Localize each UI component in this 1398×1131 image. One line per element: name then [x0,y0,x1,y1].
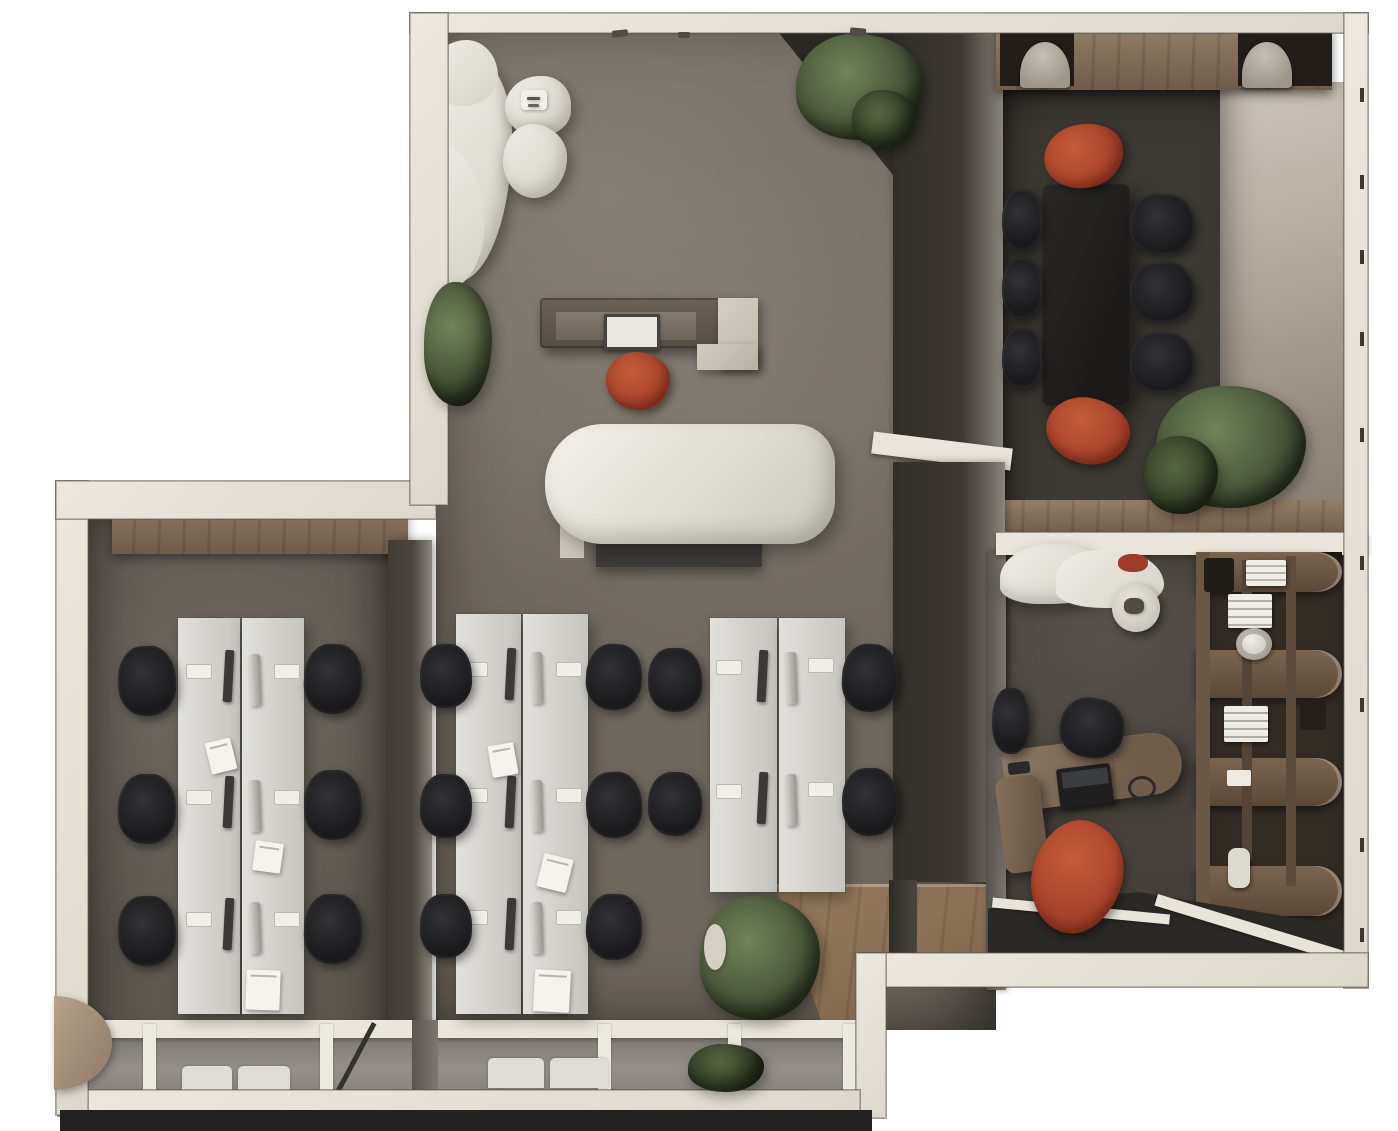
facade-header [86,1020,862,1038]
keyboard [716,660,742,675]
keyboard [808,658,834,673]
potted-plant [852,90,916,148]
office-chair [1002,328,1042,388]
wall-edge-tick [1360,838,1364,852]
paper-sheet [252,840,284,874]
facade-mullion [143,1024,156,1096]
wall-team-room-top [56,481,436,519]
keyboard [556,662,582,677]
monitor [531,902,544,954]
paper-sheet [533,969,571,1013]
planter-vase [704,924,726,970]
wall-outer-bottom-right [860,953,1368,987]
monitor [785,652,798,704]
tray-decor [521,90,547,110]
office-floorplan-render [0,0,1398,1131]
sofa-red-cushion [1118,554,1148,572]
office-chair [303,769,363,841]
keyboard [274,664,300,679]
window-reflection-tab [488,1058,544,1088]
facade-mullion [843,1024,856,1096]
office-chair [420,894,472,958]
facade-mullion [320,1024,333,1096]
office-chair [841,767,899,837]
shelf-vase [1236,628,1272,660]
wall-outer-right [1344,13,1368,988]
office-chair [647,771,703,837]
wall-edge-tick [1360,928,1364,942]
waiting-bench [545,424,835,544]
office-chair [1129,261,1195,323]
wall-outer-top [410,13,1368,33]
potted-plant [688,1044,764,1092]
office-chair [647,647,703,713]
keyboard [716,784,742,799]
keyboard [808,782,834,797]
office-chair [1129,331,1195,393]
shelf-bottle [1228,848,1250,888]
office-chair [840,643,899,714]
office-chair [1002,190,1042,250]
potted-plant [1144,436,1218,514]
wall-hook [850,27,867,36]
bookshelf-upright [1196,552,1210,940]
shelf-item-dark [1204,558,1234,592]
wall-corridor-stub [889,880,917,954]
office-chair [584,643,643,712]
books-stack [1224,706,1268,742]
reception-monitor [604,314,660,350]
wall-edge-tick [1360,698,1364,712]
office-chair [303,893,363,965]
tray-item [528,104,539,107]
side-table-decor [1124,598,1144,614]
bookshelf-upright [1286,556,1296,886]
monitor [531,780,544,832]
keyboard [186,912,212,927]
office-chair [1002,258,1042,318]
rust-chair [606,352,670,410]
wall-edge-tick [1360,556,1364,570]
office-chair [585,893,643,961]
keyboard [186,664,212,679]
shelf-item-small [1227,770,1251,786]
monitor [249,654,262,706]
office-chair [117,773,177,845]
wall-facade-stub [412,1020,438,1098]
office-chair [302,643,364,716]
paper-sheet [245,969,280,1010]
shelf-item-dark [1300,700,1326,730]
office-chair [419,643,473,709]
tray-item [527,97,540,100]
window-reflection-tab [550,1058,608,1088]
office-chair [1129,193,1195,255]
monitor [249,902,262,954]
office-chair [584,771,643,840]
keyboard [274,912,300,927]
potted-plant [424,282,492,406]
wall-outer-step [856,953,886,1118]
wall-edge-tick [1360,175,1364,189]
wall-edge-tick [1360,332,1364,346]
keyboard [186,790,212,805]
wall-edge-tick [1360,250,1364,264]
office-chair [116,645,178,718]
keyboard [274,790,300,805]
base-strip [60,1110,872,1131]
office-chair [992,688,1030,754]
monitor [249,780,262,832]
keyboard [556,788,582,803]
headset [1128,776,1156,800]
wall-edge-tick [1360,88,1364,102]
office-chair [419,773,473,839]
paper-sheet [487,742,518,778]
bookshelf-band [1196,758,1342,806]
wall-reception-left [410,13,448,505]
conference-table [1042,184,1130,406]
keyboard [556,910,582,925]
books-stack [1246,560,1286,586]
monitor [531,652,544,704]
reception-desk-return-foot [697,344,758,370]
books-stack [1228,594,1272,628]
wall-edge-tick [1360,428,1364,442]
bookshelf-band [1196,650,1342,698]
monitor [785,774,798,826]
wall-hook [678,32,690,38]
office-chair [117,895,177,967]
